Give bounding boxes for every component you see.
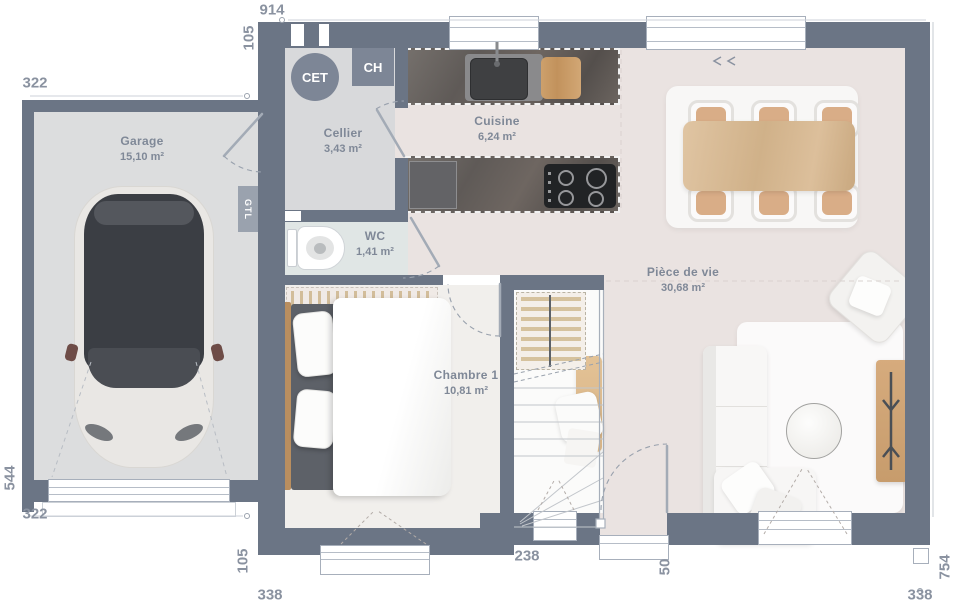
dim-overall-width: 914: [259, 2, 284, 19]
room-name: Pièce de vie: [647, 264, 719, 281]
burner: [558, 170, 574, 186]
room-name: WC: [356, 228, 394, 245]
window: [758, 511, 852, 545]
appliance: [409, 161, 457, 209]
floor-plan: CET CH GTL: [0, 0, 960, 606]
room-area: 6,24 m²: [474, 130, 519, 146]
front-door-opening: [600, 513, 667, 535]
dim-bedroom-width: 338: [257, 587, 282, 604]
kitchen-counter-bottom: [405, 156, 620, 213]
toilet-bowl: [297, 226, 345, 270]
room-label-piece-de-vie: Pièce de vie 30,68 m²: [647, 264, 719, 297]
room-label-chambre-1: Chambre 1 10,81 m²: [434, 367, 499, 400]
room-area: 3,43 m²: [324, 142, 363, 158]
burner: [586, 168, 607, 189]
wall-niche: [319, 24, 329, 46]
room-name: Chambre 1: [434, 367, 499, 384]
dim-living-width: 338: [907, 587, 932, 604]
sideboard: [876, 360, 908, 482]
sofa-cushion-line: [716, 406, 767, 407]
cet-label: CET: [302, 70, 328, 85]
boiler-ch: CH: [352, 48, 394, 86]
cutting-board: [541, 57, 581, 99]
room-name: Cellier: [324, 125, 363, 142]
room-area: 30,68 m²: [647, 281, 719, 297]
stairs-wardrobe: [516, 292, 586, 370]
dim-garage-depth: 544: [2, 465, 19, 490]
corner-marker: [913, 548, 929, 564]
dim-bedroom-offset: 105: [235, 548, 252, 573]
dim-door-width: 50: [657, 559, 674, 576]
wall: [228, 480, 258, 502]
wall: [22, 480, 48, 502]
room-label-cellier: Cellier 3,43 m²: [324, 125, 363, 158]
wardrobe-rail: [549, 295, 551, 367]
wall: [395, 158, 408, 215]
room-area: 10,81 m²: [434, 384, 499, 400]
bed-pillow: [293, 388, 338, 449]
dining-table: [683, 121, 855, 191]
room-area: 15,10 m²: [120, 150, 164, 166]
wall: [905, 22, 930, 517]
wall-niche: [285, 211, 301, 221]
coffee-table: [786, 403, 842, 459]
wall-niche: [291, 24, 304, 46]
toilet-tank: [287, 229, 297, 267]
window: [533, 511, 577, 541]
toilet-drain: [314, 243, 326, 254]
door-opening: [443, 275, 500, 285]
gtl-label: GTL: [243, 199, 253, 220]
wall: [503, 275, 604, 290]
stove: [544, 164, 616, 208]
wall: [395, 48, 408, 108]
room-label-wc: WC 1,41 m²: [356, 228, 394, 261]
wall: [480, 513, 514, 555]
dim-entry-width: 238: [514, 548, 539, 565]
window: [646, 16, 806, 50]
kitchen-counter-top: [405, 48, 620, 105]
dim-right-depth: 754: [937, 554, 954, 579]
wall: [258, 22, 930, 48]
room-name: Garage: [120, 133, 164, 150]
wall: [22, 100, 34, 512]
burner: [588, 191, 604, 207]
window: [449, 16, 539, 50]
hanging-clothes: [521, 297, 581, 365]
wall: [500, 275, 514, 530]
wall: [285, 210, 408, 222]
garage-door-sill: [42, 502, 236, 517]
room-area: 1,41 m²: [356, 245, 394, 261]
dim-front-offset: 105: [241, 25, 258, 50]
car-rear-window: [94, 201, 194, 225]
room-label-garage: Garage 15,10 m²: [120, 133, 164, 166]
burner: [558, 190, 574, 206]
dim-garage-width-top: 322: [22, 75, 47, 92]
dim-garage-width-bottom: 322: [22, 506, 47, 523]
room-label-cuisine: Cuisine 6,24 m²: [474, 113, 519, 146]
wall: [258, 48, 285, 530]
garage-door: [48, 479, 230, 502]
room-name: Cuisine: [474, 113, 519, 130]
front-door-sill: [599, 535, 669, 560]
window: [320, 545, 430, 575]
desk-sheet: [563, 428, 600, 469]
wall: [22, 100, 258, 112]
car-windshield: [88, 348, 200, 388]
bed-pillow: [292, 310, 338, 378]
stove-knobs: [548, 172, 551, 202]
electrical-gtl: GTL: [238, 186, 258, 232]
water-heater-cet: CET: [291, 53, 339, 101]
ch-label: CH: [364, 60, 383, 75]
sink-basin: [470, 58, 528, 100]
